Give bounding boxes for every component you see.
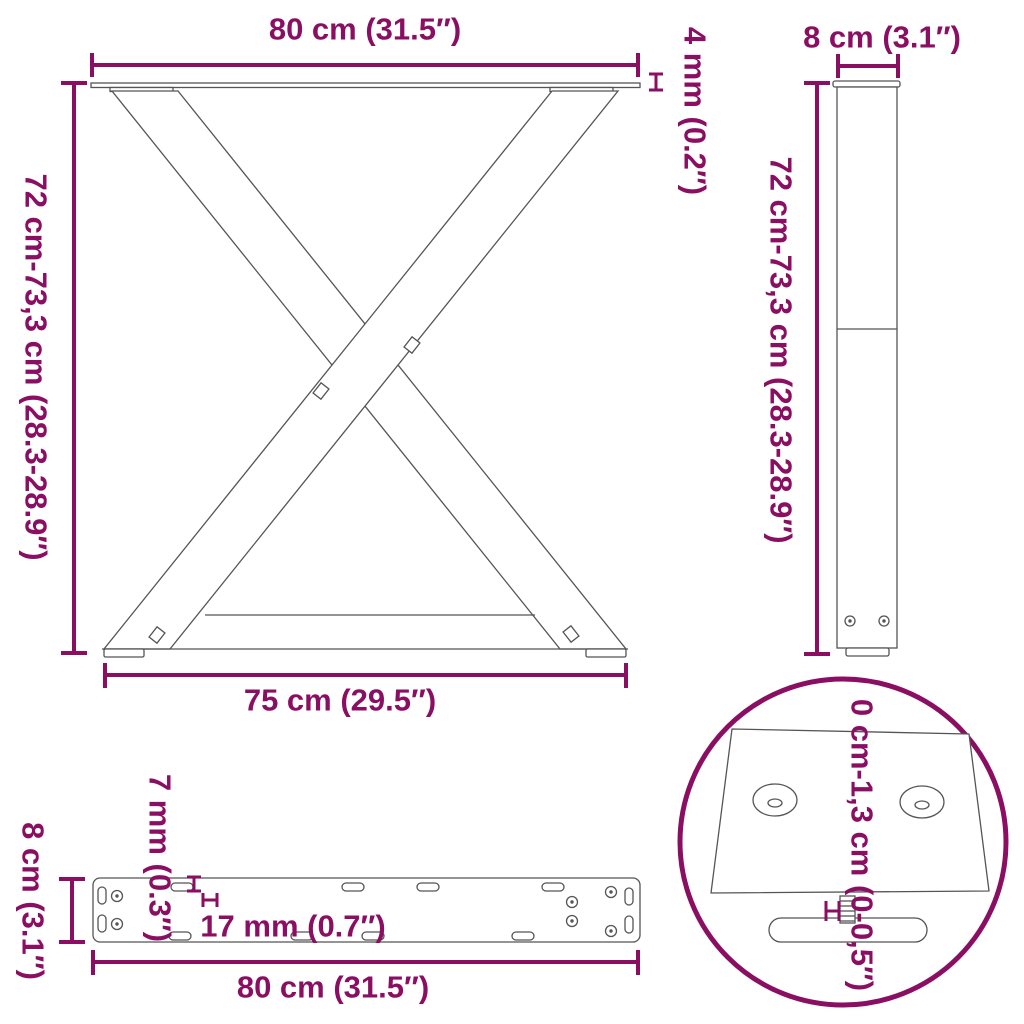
front-height-range-label: 72 cm-73,3 cm (28.3-28.9″) bbox=[21, 173, 52, 560]
side-top-plate bbox=[833, 81, 900, 87]
screw-hole-center bbox=[609, 929, 612, 932]
front-view-drawing bbox=[91, 83, 640, 657]
screw-hole-center bbox=[570, 919, 573, 922]
side-view-drawing bbox=[833, 81, 900, 656]
foot-adjustment-label: 0 cm-1,3 cm (0-0,5″) bbox=[847, 699, 878, 991]
screw-hole-center bbox=[882, 619, 885, 622]
slot bbox=[625, 916, 633, 933]
foot-glide-hole bbox=[915, 801, 929, 809]
slot bbox=[417, 883, 439, 891]
slot bbox=[512, 932, 534, 940]
top-plate bbox=[91, 83, 640, 88]
screw-hole-center bbox=[848, 619, 851, 622]
side-leg-body bbox=[837, 87, 897, 648]
slot bbox=[98, 887, 106, 904]
screw-hole-center bbox=[115, 894, 118, 897]
plate-depth-label: 8 cm (3.1″) bbox=[18, 822, 49, 980]
plate-large-hole-label: 17 mm (0.7″) bbox=[200, 911, 385, 942]
screw-hole-center bbox=[570, 900, 573, 903]
foot-glide-hole bbox=[768, 799, 782, 807]
plate-length-label: 80 cm (31.5″) bbox=[237, 972, 429, 1003]
foot-pad-left bbox=[104, 649, 144, 657]
slot bbox=[542, 883, 564, 891]
screw-hole-center bbox=[115, 922, 118, 925]
slot bbox=[98, 915, 106, 932]
side-height-range-label: 72 cm-73,3 cm (28.3-28.9″) bbox=[766, 156, 797, 543]
screw-hole-center bbox=[609, 890, 612, 893]
plate-small-hole-label: 7 mm (0.3″) bbox=[145, 774, 176, 942]
diagram-canvas: 80 cm (31.5″) 72 cm-73,3 cm (28.3-28.9″)… bbox=[0, 0, 1024, 1024]
foot-pad-right bbox=[586, 649, 626, 657]
front-bottom-width-label: 75 cm (29.5″) bbox=[244, 685, 436, 716]
plate-thickness-marker-4mm bbox=[649, 74, 663, 90]
slot bbox=[625, 888, 633, 905]
foot-detail-drawing bbox=[680, 679, 1006, 1005]
top-plate-thickness-label: 4 mm (0.2″) bbox=[680, 27, 711, 195]
front-top-width-label: 80 cm (31.5″) bbox=[269, 14, 461, 45]
side-depth-label: 8 cm (3.1″) bbox=[803, 22, 961, 53]
slot bbox=[342, 883, 364, 891]
side-foot bbox=[846, 648, 889, 656]
